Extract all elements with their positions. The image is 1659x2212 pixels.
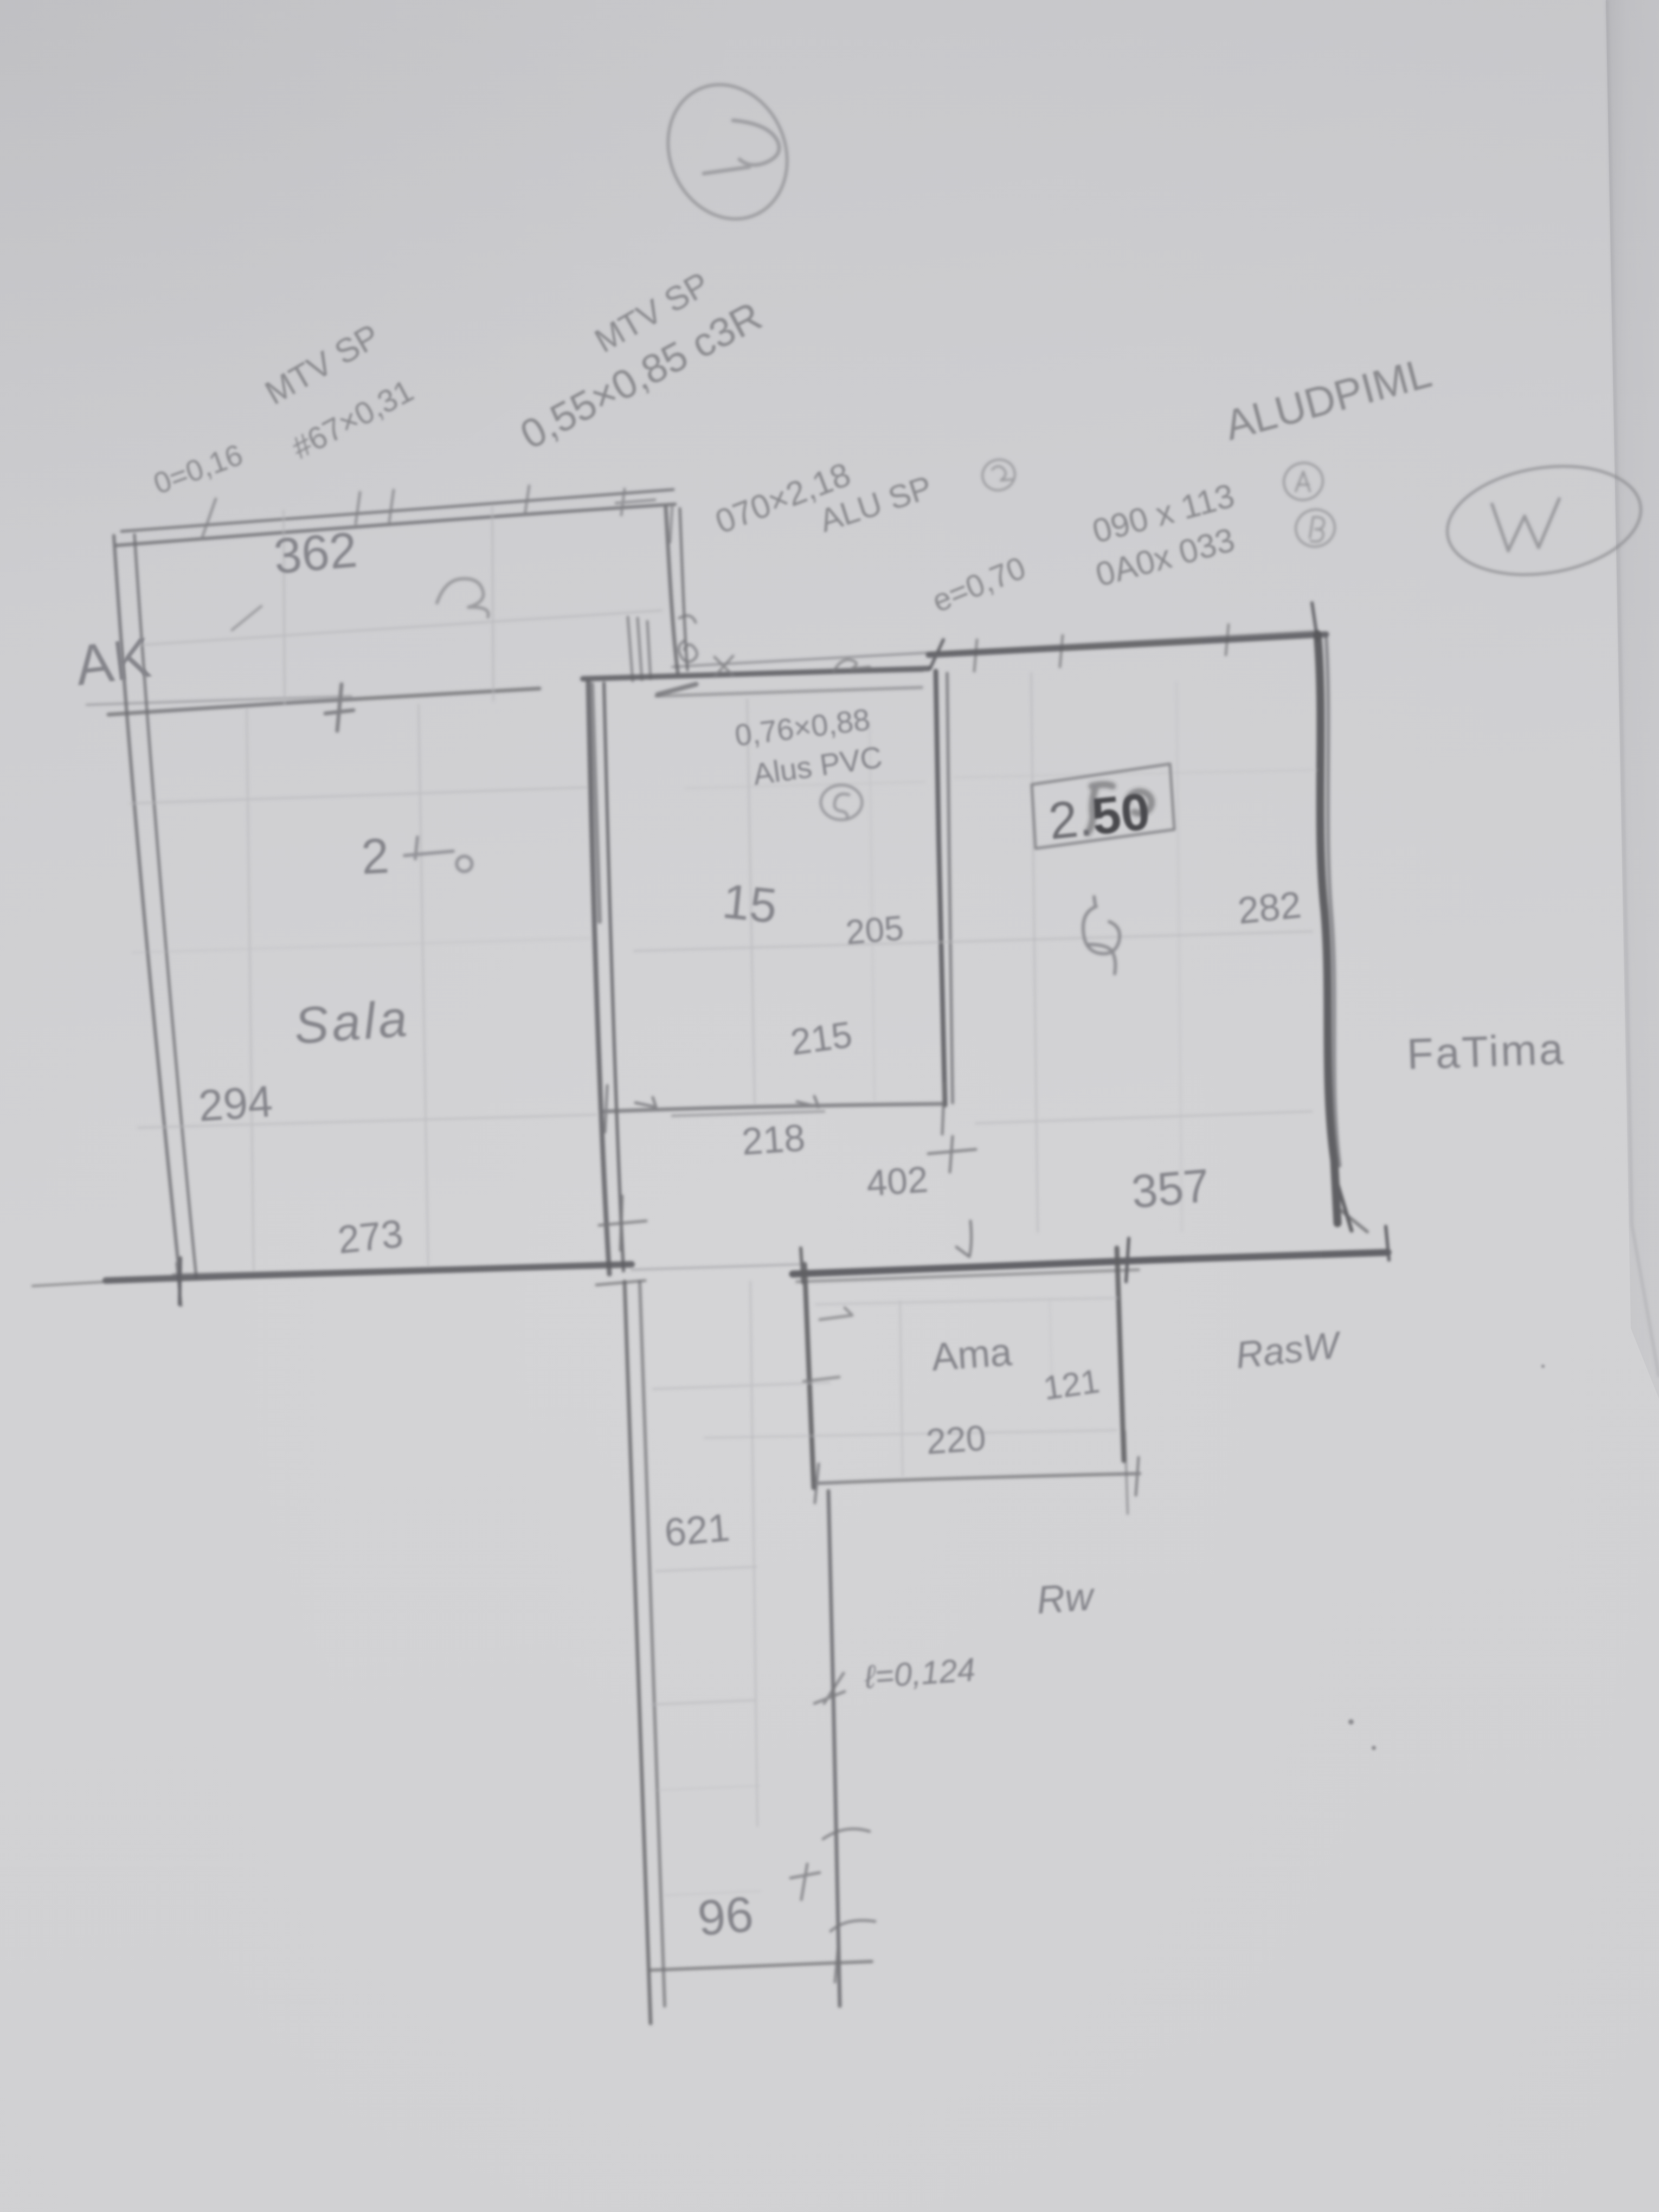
svg-text:96: 96 [696,1886,756,1946]
svg-text:121: 121 [1041,1362,1102,1407]
svg-text:2: 2 [360,828,390,885]
svg-text:218: 218 [741,1116,807,1163]
svg-text:362: 362 [272,522,359,584]
svg-text:Rw: Rw [1036,1575,1097,1622]
svg-text:621: 621 [663,1506,731,1555]
svg-text:282: 282 [1236,883,1303,932]
svg-text:205: 205 [844,908,905,952]
svg-text:357: 357 [1129,1160,1211,1218]
svg-text:15: 15 [720,874,780,934]
svg-text:FaTima: FaTima [1406,1025,1566,1078]
svg-text:AK: AK [72,626,155,698]
svg-text:2.50: 2.50 [1046,782,1153,851]
svg-text:294: 294 [197,1077,274,1131]
svg-text:402: 402 [865,1159,929,1204]
svg-text:215: 215 [788,1014,855,1063]
svg-text:ℓ=0,124: ℓ=0,124 [863,1651,976,1695]
svg-text:Ama: Ama [930,1330,1014,1379]
svg-text:220: 220 [925,1417,987,1462]
svg-text:Sala: Sala [292,989,412,1055]
svg-text:273: 273 [336,1212,405,1262]
